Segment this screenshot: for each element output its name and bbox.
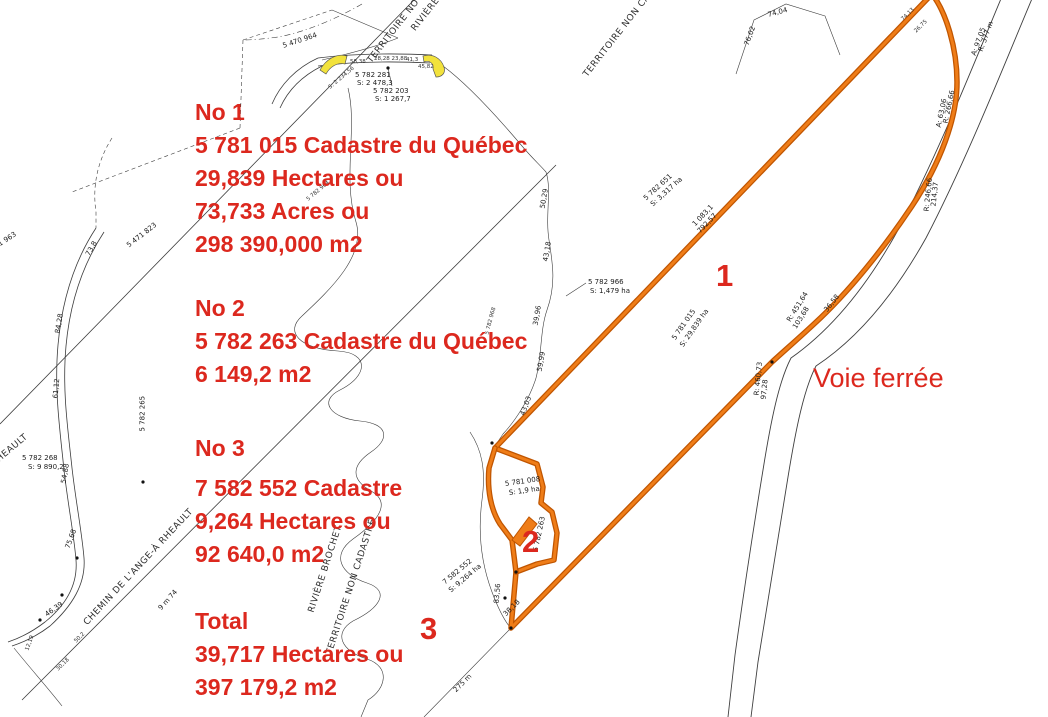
map-label: 83,56 <box>494 583 503 604</box>
map-label: 30,18 <box>56 658 71 673</box>
map-label: 5 471 963 <box>0 231 18 256</box>
map-labels-layer: 5 470 9645 471 8235 471 9635 782 268S: 9… <box>0 0 1048 717</box>
map-label: 43,03 <box>520 395 533 416</box>
map-label: 12,19 <box>25 635 36 652</box>
map-label: S: 2 478,3 <box>357 80 393 87</box>
map-label: S: 2 234,56 <box>328 66 356 91</box>
map-label: 46,39 <box>44 601 64 618</box>
map-label: 5 782 968 <box>485 307 498 335</box>
map-label: 9 m 74 <box>157 589 179 612</box>
map-label: 84,28 <box>55 313 65 334</box>
map-label: 59,99 <box>537 351 547 372</box>
map-label: 43,18 <box>543 241 553 262</box>
map-label: 76,02 <box>744 25 757 46</box>
map-label: 36,58 <box>823 294 841 314</box>
map-label: RIVIÈRE BROCHET <box>308 525 345 614</box>
map-label: 50,2 <box>74 632 87 645</box>
map-label: 5 471 823 <box>126 222 158 249</box>
map-label: S: 9 890,2 <box>28 464 64 471</box>
map-label: CHEMIN DE L'ANGE-À RHEAULT <box>83 508 196 628</box>
map-label: 275 m <box>453 673 474 694</box>
map-label: 5 782 966 <box>588 279 624 286</box>
map-label: TERRITOIRE NON CADASTRÉ <box>582 0 677 79</box>
map-label: S: 1 267,7 <box>375 96 411 103</box>
map-label: 5 782 281 <box>355 72 391 79</box>
map-label: 5 782 203 <box>373 88 409 95</box>
map-label: 26,75 <box>914 20 929 35</box>
map-label: S: 1,9 ha <box>509 486 541 497</box>
map-label: S: 1,479 ha <box>590 288 630 295</box>
map-label: 5 782 265 <box>140 396 147 432</box>
map-label: 50,29 <box>540 188 550 209</box>
map-label: 54,88 <box>61 463 71 484</box>
map-label: 5 470 964 <box>282 32 318 50</box>
map-label: 74,04 <box>767 7 788 19</box>
map-label: CHEMIN DE L'ANGE-À RHEAULT <box>0 433 30 540</box>
map-label: 5 782 263 <box>533 516 547 552</box>
map-label: 41,3 <box>406 58 418 64</box>
map-label: 45,82 <box>418 65 434 71</box>
map-label: 75,68 <box>65 528 78 549</box>
map-label: 61,12 <box>53 378 62 399</box>
map-label: 5 782 964 <box>306 181 331 203</box>
map-label: 39,96 <box>533 305 543 326</box>
map-label: 38,18 <box>503 599 522 618</box>
map-label: 5 782 268 <box>22 455 58 462</box>
map-label: 73,8 <box>85 240 99 257</box>
map-label: 74,13 <box>901 8 916 23</box>
map-label: 97,28 <box>761 379 770 400</box>
cadastral-map-page: 5 470 9645 471 8235 471 9635 782 268S: 9… <box>0 0 1048 717</box>
